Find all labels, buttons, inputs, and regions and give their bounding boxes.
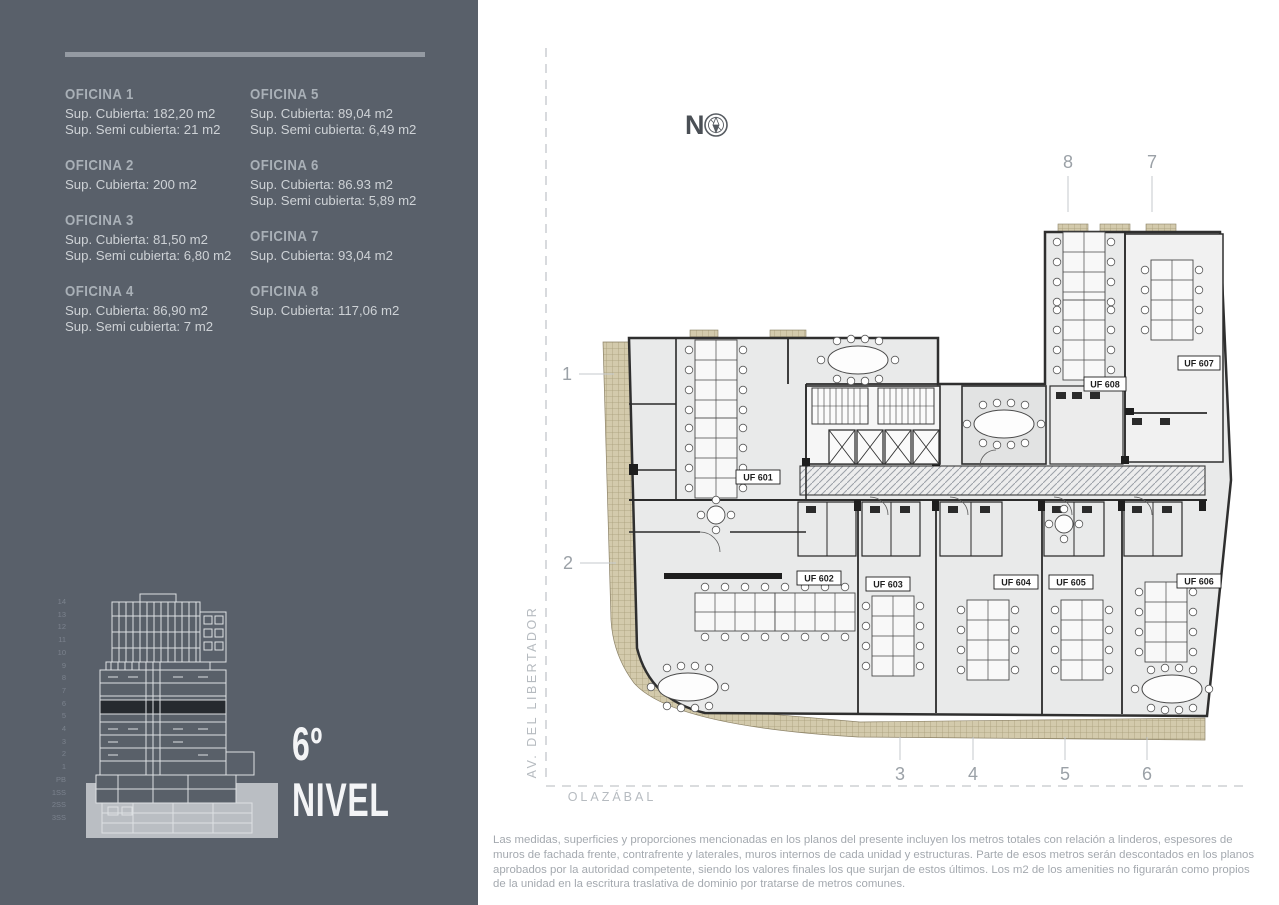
office-card-2: OFICINA 2 Sup. Cubierta: 200 m2 [65, 157, 197, 193]
floor-label: 1 [40, 763, 66, 771]
unit-label-605: UF 605 [1056, 578, 1086, 588]
floor-label: 7 [40, 687, 66, 695]
office-name: OFICINA 7 [250, 228, 376, 245]
grid-axis-4: 4 [968, 764, 978, 784]
floor-label: 12 [40, 623, 66, 631]
north-indicator: N [685, 110, 727, 140]
unit-label-608: UF 608 [1090, 380, 1120, 390]
office-card-6: OFICINA 6 Sup. Cubierta: 86.93 m2 Sup. S… [250, 157, 416, 209]
office-name: OFICINA 4 [65, 283, 195, 300]
unit-label-602: UF 602 [804, 574, 834, 584]
unit-label-601: UF 601 [743, 473, 773, 483]
office-card-7: OFICINA 7 Sup. Cubierta: 93,04 m2 [250, 228, 393, 264]
grid-axis-1: 1 [562, 364, 572, 384]
office-line: Sup. Cubierta: 93,04 m2 [250, 248, 393, 264]
building-elevation-drawing [78, 592, 283, 842]
office-card-5: OFICINA 5 Sup. Cubierta: 89,04 m2 Sup. S… [250, 86, 416, 138]
office-line: Sup. Semi cubierta: 5,89 m2 [250, 193, 416, 209]
office-line: Sup. Cubierta: 200 m2 [65, 177, 197, 193]
floor-label: 2SS [40, 801, 66, 809]
office-line: Sup. Cubierta: 86,90 m2 [65, 303, 213, 319]
floor-label: 6 [40, 700, 66, 708]
grid-axis-7: 7 [1147, 152, 1157, 172]
office-name: OFICINA 6 [250, 157, 396, 174]
unit-label-607: UF 607 [1184, 359, 1214, 369]
level-title: 6º NIVEL [292, 716, 390, 828]
floor-label: 13 [40, 611, 66, 619]
grid-axis-8: 8 [1063, 152, 1073, 172]
level-number: 6º [292, 716, 390, 772]
grid-axis-6: 6 [1142, 764, 1152, 784]
sidebar: OFICINA 1 Sup. Cubierta: 182,20 m2 Sup. … [0, 0, 478, 905]
floor-label: 3 [40, 738, 66, 746]
floor-plan-drawing: UF 601 UF 602 UF 603 UF 604 UF 605 UF 60… [487, 0, 1279, 830]
floor-label: 10 [40, 649, 66, 657]
floor-label: 9 [40, 662, 66, 670]
office-card-8: OFICINA 8 Sup. Cubierta: 117,06 m2 [250, 283, 399, 319]
grid-axis-2: 2 [563, 553, 573, 573]
floor-label: 5 [40, 712, 66, 720]
floor-label: PB [40, 776, 66, 784]
office-line: Sup. Cubierta: 86.93 m2 [250, 177, 416, 193]
office-card-1: OFICINA 1 Sup. Cubierta: 182,20 m2 Sup. … [65, 86, 220, 138]
sidebar-top-rule [65, 52, 425, 57]
floorplan-brochure-page: { "sidebar": { "offices": [ {"name":"OFI… [0, 0, 1279, 905]
office-line: Sup. Cubierta: 81,50 m2 [65, 232, 231, 248]
common-corridor-hatched [800, 466, 1205, 495]
office-name: OFICINA 5 [250, 86, 396, 103]
office-line: Sup. Semi cubierta: 7 m2 [65, 319, 213, 335]
office-card-4: OFICINA 4 Sup. Cubierta: 86,90 m2 Sup. S… [65, 283, 213, 335]
street-label-olazabal: OLAZÁBAL [568, 789, 657, 804]
office-name: OFICINA 1 [65, 86, 202, 103]
floor-label: 8 [40, 674, 66, 682]
unit-label-606: UF 606 [1184, 577, 1214, 587]
compass-icon [705, 114, 727, 136]
office-name: OFICINA 8 [250, 283, 381, 300]
grid-axis-3: 3 [895, 764, 905, 784]
office-line: Sup. Cubierta: 117,06 m2 [250, 303, 399, 319]
floor-label: 14 [40, 598, 66, 606]
unit-label-604: UF 604 [1001, 578, 1031, 588]
north-label: N [685, 110, 705, 140]
street-label-libertador: AV. DEL LIBERTADOR [525, 606, 539, 779]
office-card-3: OFICINA 3 Sup. Cubierta: 81,50 m2 Sup. S… [65, 212, 231, 264]
floor-label: 3SS [40, 814, 66, 822]
office-line: Sup. Cubierta: 89,04 m2 [250, 106, 416, 122]
floor-label: 4 [40, 725, 66, 733]
office-line: Sup. Semi cubierta: 6,49 m2 [250, 122, 416, 138]
floor-label: 2 [40, 750, 66, 758]
grid-axis-5: 5 [1060, 764, 1070, 784]
unit-label-603: UF 603 [873, 580, 903, 590]
office-name: OFICINA 2 [65, 157, 181, 174]
legal-disclaimer: Las medidas, superficies y proporciones … [493, 833, 1255, 892]
floor-label: 1SS [40, 789, 66, 797]
office-line: Sup. Semi cubierta: 21 m2 [65, 122, 220, 138]
floor-label: 11 [40, 636, 66, 644]
office-line: Sup. Cubierta: 182,20 m2 [65, 106, 220, 122]
level-word: NIVEL [292, 772, 390, 828]
office-name: OFICINA 3 [65, 212, 211, 229]
elevation-floor-index: 14 13 12 11 10 9 8 7 6 5 4 3 2 1 PB 1SS … [40, 598, 66, 822]
office-line: Sup. Semi cubierta: 6,80 m2 [65, 248, 231, 264]
